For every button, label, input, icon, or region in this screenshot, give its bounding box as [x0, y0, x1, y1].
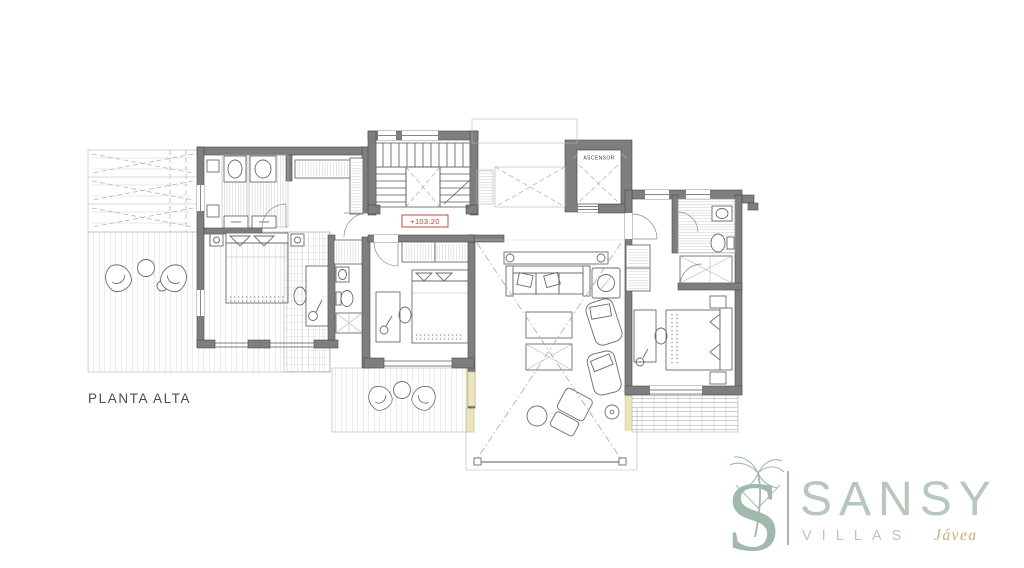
elevator: ASCENSOR: [573, 150, 626, 204]
living-room-furniture: [475, 240, 625, 459]
terrace-pergola: [88, 150, 198, 232]
living-bay: [466, 408, 637, 470]
terrace-deck-left: [88, 232, 330, 372]
bathroom-2: [334, 240, 362, 333]
bed-3: [666, 308, 732, 370]
logo-monogram-letter: S: [726, 461, 782, 568]
wardrobe-3: [626, 245, 650, 291]
terrace-middle: [332, 368, 474, 432]
chaise-2: [586, 349, 623, 397]
double-height-void-cross: [477, 243, 621, 459]
balcony-right: [625, 395, 738, 432]
elevator-label: ASCENSOR: [583, 156, 614, 162]
elevation-marker: +103.20: [402, 215, 448, 227]
logo-brand-name: SANSY: [800, 473, 998, 526]
brand-logo: S SANSY VILLAS Jávea: [726, 457, 998, 568]
wardrobe-2: [402, 242, 468, 262]
recliner: [548, 387, 594, 438]
desk-2: [376, 292, 400, 342]
plan-title: PLANTA ALTA: [88, 391, 191, 406]
elevation-label: +103.20: [410, 217, 439, 226]
sofa: [506, 266, 590, 296]
corridor-skylight: [472, 119, 577, 207]
skylight-void-cross: [495, 167, 565, 207]
master-wardrobe: [295, 158, 363, 214]
bed-2: [412, 270, 468, 343]
staircase: [376, 143, 470, 207]
master-bathroom: [207, 155, 288, 228]
chaise-1: [584, 297, 624, 347]
floor-plan-page: ASCENSOR: [0, 0, 1024, 568]
stairwell-void-cross: [406, 167, 440, 207]
logo-location-text: Jávea: [934, 527, 978, 544]
bedroom-2-furniture: [376, 242, 468, 343]
coffee-table-1: [526, 312, 572, 338]
logo-villas-text: VILLAS: [802, 528, 911, 544]
floor-plan-canvas: ASCENSOR: [0, 0, 1024, 568]
